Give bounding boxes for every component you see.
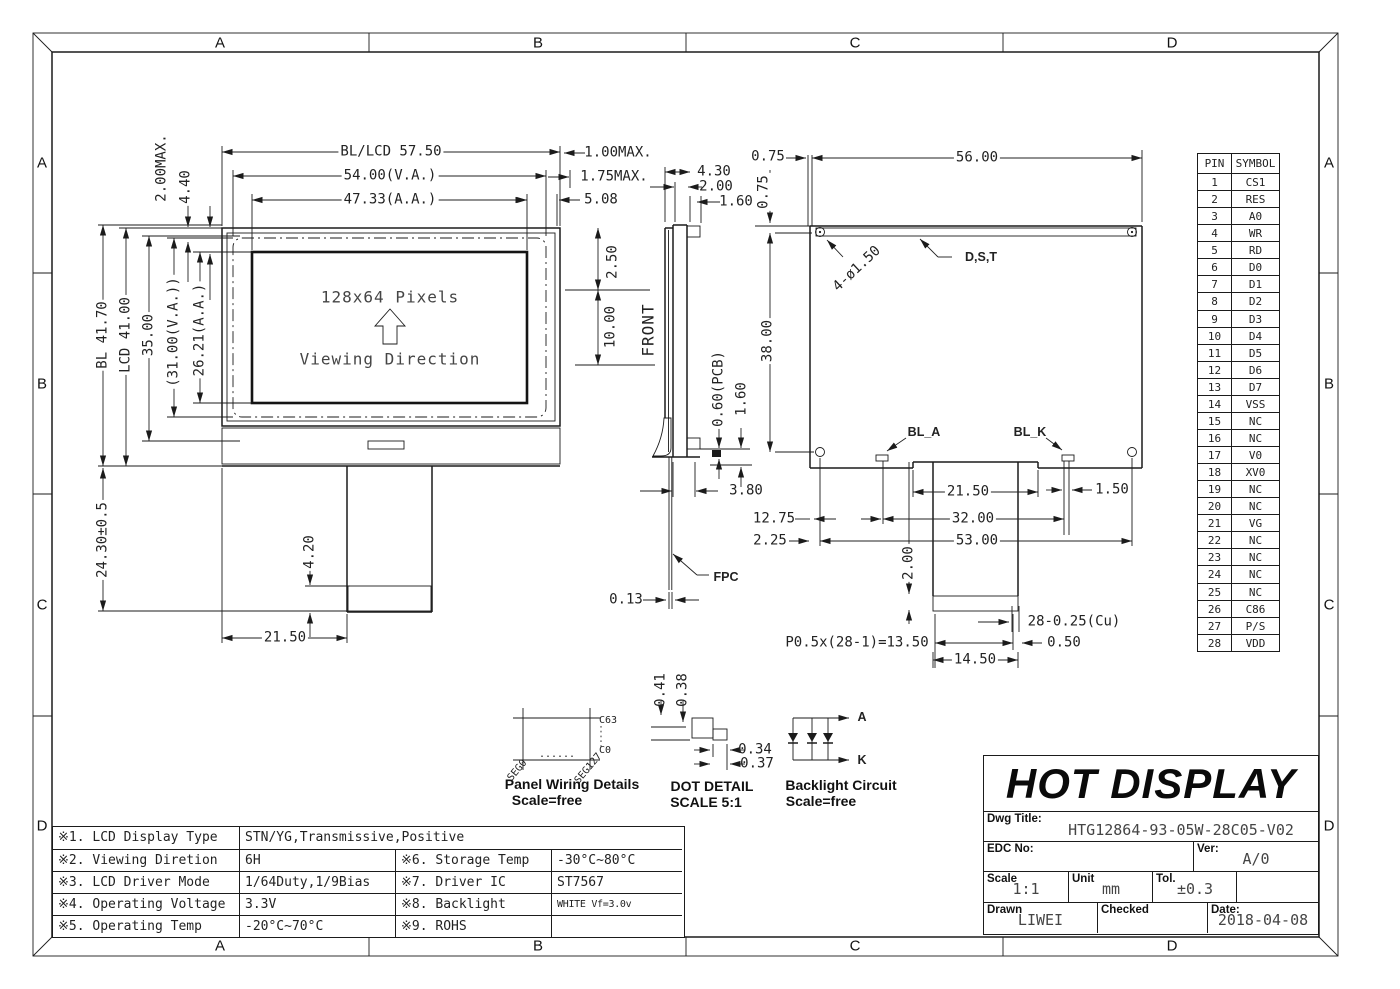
zone-bottom-a: A: [215, 938, 225, 955]
pin-table-header: PIN SYMBOL: [1198, 154, 1279, 173]
drawn-value: LIWEI: [984, 911, 1097, 929]
pin-symbol: CS1: [1231, 173, 1279, 191]
spec-key: ※1. LCD Display Type: [53, 827, 239, 849]
spec-row-5: ※5. Operating Temp -20°C~70°C ※9. ROHS: [53, 915, 684, 937]
dim-front-2150: 21.50: [262, 631, 308, 646]
zone-left-d: D: [37, 818, 48, 835]
pin-table-header-symbol: SYMBOL: [1231, 154, 1279, 173]
side-front-label: FRONT: [641, 301, 658, 358]
pin-symbol: C86: [1231, 600, 1279, 618]
spec-table: ※1. LCD Display Type STN/YG,Transmissive…: [52, 826, 685, 938]
dim-front-bezel-max: 2.00MAX.: [155, 132, 170, 203]
pin-table-row: 16 NC: [1198, 429, 1279, 446]
pin-table-row: 23 NC: [1198, 548, 1279, 565]
spec-value: -30°C~80°C: [551, 849, 682, 871]
pin-symbol: VG: [1231, 514, 1279, 532]
spec-value: STN/YG,Transmissive,Positive: [239, 827, 682, 849]
unit-cell: Unit mm: [1068, 872, 1153, 902]
pin-number: 23: [1198, 548, 1231, 566]
pin-table-row: 20 NC: [1198, 497, 1279, 514]
pin-symbol: A0: [1231, 207, 1279, 225]
pin-symbol: WR: [1231, 224, 1279, 242]
pin-table-row: 14 VSS: [1198, 395, 1279, 412]
projection-symbol-cell: [1236, 872, 1318, 902]
pin-table-row: 27 P/S: [1198, 617, 1279, 634]
pin-table-row: 25 NC: [1198, 583, 1279, 600]
backlight-circuit-detail: [788, 718, 849, 760]
pin-table-row: 19 NC: [1198, 480, 1279, 497]
pin-table-row: 17 V0: [1198, 446, 1279, 463]
zone-bottom-c: C: [850, 938, 861, 955]
pin-symbol: NC: [1231, 429, 1279, 447]
dim-side-013: 0.13: [607, 593, 645, 608]
pin-table-row: 4 WR: [1198, 224, 1279, 241]
pin-symbol: D1: [1231, 275, 1279, 293]
pin-table-row: 28 VDD: [1198, 634, 1279, 651]
pin-number: 27: [1198, 617, 1231, 635]
pin-table-row: 8 D2: [1198, 292, 1279, 309]
pin-number: 10: [1198, 327, 1231, 345]
drawn-checked-date-row: Drawn LIWEI Checked Date: 2018-04-08: [984, 903, 1318, 933]
backlight-anode-label: A: [855, 710, 868, 724]
spec-key: ※9. ROHS: [395, 915, 551, 937]
dim-back-075v: 0.75: [757, 173, 772, 211]
pin-symbol: NC: [1231, 480, 1279, 498]
dim-front-508: 5.08: [582, 193, 620, 208]
pin-table-row: 13 D7: [1198, 378, 1279, 395]
pin-table-header-pin: PIN: [1198, 154, 1231, 173]
dim-back-1450: 14.50: [952, 653, 998, 668]
dwg-title-label: Dwg Title:: [987, 813, 1042, 825]
dim-back-3800: 38.00: [761, 318, 776, 364]
zone-right-a: A: [1324, 155, 1334, 172]
spec-key: ※8. Backlight: [395, 893, 551, 915]
dim-front-1max: 1.00MAX.: [582, 146, 653, 161]
zone-left-a: A: [37, 155, 47, 172]
pin-symbol: D6: [1231, 361, 1279, 379]
dim-side-160: 1.60: [717, 195, 755, 210]
dim-front-bl-height: BL 41.70: [96, 299, 111, 370]
pin-symbol: RES: [1231, 190, 1279, 208]
back-view: [810, 226, 1142, 611]
pin-table-row: 10 D4: [1198, 327, 1279, 344]
spec-value: [551, 915, 682, 937]
pin-number: 6: [1198, 258, 1231, 276]
pin-number: 26: [1198, 600, 1231, 618]
pin-symbol: D7: [1231, 378, 1279, 396]
pin-symbol: D0: [1231, 258, 1279, 276]
dim-back-1275: 12.75: [751, 512, 797, 527]
pin-table-row: 11 D5: [1198, 344, 1279, 361]
dim-front-va-height: (31.00(V.A.)): [167, 275, 182, 389]
pin-number: 5: [1198, 241, 1231, 259]
pin-symbol: V0: [1231, 446, 1279, 464]
pin-number: 17: [1198, 446, 1231, 464]
spec-value: 3.3V: [239, 893, 395, 915]
dim-back-200: 2.00: [902, 544, 917, 582]
spec-key: ※7. Driver IC: [395, 871, 551, 893]
spec-value: 6H: [239, 849, 395, 871]
dim-front-overall-width: BL/LCD 57.50: [338, 145, 443, 160]
edc-ver-row: EDC No: Ver: A/0: [984, 842, 1318, 872]
dim-front-lcd-height: LCD 41.00: [119, 295, 134, 375]
spec-key: ※2. Viewing Diretion: [53, 849, 239, 871]
zone-top-d: D: [1167, 35, 1178, 52]
dim-front-420: 4.20: [303, 533, 318, 571]
front-pixels-label: 128x64 Pixels: [319, 290, 461, 307]
spec-value: WHITE Vf=3.0v IF=45mA: [551, 893, 682, 915]
ver-value: A/0: [1194, 850, 1318, 868]
tol-value: ±0.3: [1153, 880, 1237, 898]
dim-back-5300: 53.00: [954, 534, 1000, 549]
zone-bottom-b: B: [533, 938, 543, 955]
pin-number: 14: [1198, 395, 1231, 413]
pin-symbol: NC: [1231, 412, 1279, 430]
pin-table-row: 21 VG: [1198, 514, 1279, 531]
back-cu-label: 28-0.25(Cu): [1026, 615, 1123, 630]
pin-table-row: 22 NC: [1198, 531, 1279, 548]
date-value: 2018-04-08: [1208, 911, 1318, 929]
dim-front-fpc-length: 24.30±0.5: [96, 500, 111, 580]
scale-unit-tol-row: Scale 1:1 Unit mm Tol. ±0.3: [984, 872, 1318, 903]
spec-row-2: ※2. Viewing Diretion 6H ※6. Storage Temp…: [53, 849, 684, 871]
pin-symbol: P/S: [1231, 617, 1279, 635]
pin-symbol: NC: [1231, 548, 1279, 566]
pin-number: 9: [1198, 310, 1231, 328]
dim-dot-041: 0.41: [654, 671, 669, 709]
backlight-detail-scale: Scale=free: [784, 793, 858, 809]
pin-table-row: 18 XV0: [1198, 463, 1279, 480]
spec-value: 1/64Duty,1/9Bias: [239, 871, 395, 893]
checked-label: Checked: [1101, 904, 1149, 916]
pin-number: 8: [1198, 292, 1231, 310]
pin-table-row: 7 D1: [1198, 275, 1279, 292]
spec-key: ※3. LCD Driver Mode: [53, 871, 239, 893]
dim-back-3200: 32.00: [950, 512, 996, 527]
spec-key: ※4. Operating Voltage: [53, 893, 239, 915]
title-block: HOT DISPLAY Dwg Title: HTG12864-93-05W-2…: [983, 755, 1319, 935]
checked-cell: Checked: [1097, 903, 1208, 933]
pin-number: 25: [1198, 583, 1231, 601]
spec-row-4: ※4. Operating Voltage 3.3V ※8. Backlight…: [53, 893, 684, 915]
zone-left-b: B: [37, 376, 47, 393]
dim-front-1000: 10.00: [604, 304, 619, 350]
pin-number: 21: [1198, 514, 1231, 532]
pin-table-row: 15 NC: [1198, 412, 1279, 429]
pin-number: 12: [1198, 361, 1231, 379]
dim-back-5600: 56.00: [954, 151, 1000, 166]
ver-cell: Ver: A/0: [1193, 842, 1318, 871]
dim-back-075h: 0.75: [749, 150, 787, 165]
pin-table-row: 24 NC: [1198, 565, 1279, 582]
pin-symbol: D5: [1231, 344, 1279, 362]
pin-number: 13: [1198, 378, 1231, 396]
pin-symbol: XV0: [1231, 463, 1279, 481]
zone-right-c: C: [1324, 597, 1335, 614]
zone-top-c: C: [850, 35, 861, 52]
zone-bottom-d: D: [1167, 938, 1178, 955]
pin-number: 11: [1198, 344, 1231, 362]
dim-front-250: 2.50: [606, 243, 621, 281]
dim-back-050: 0.50: [1045, 636, 1083, 651]
engineering-drawing-sheet: A B C D A B C D A B C D A B C D BL/LCD 5…: [0, 0, 1400, 989]
backlight-detail-title: Backlight Circuit: [783, 777, 898, 793]
zone-top-a: A: [215, 35, 225, 52]
pin-number: 16: [1198, 429, 1231, 447]
pin-table-row: 5 RD: [1198, 241, 1279, 258]
pin-symbol: D4: [1231, 327, 1279, 345]
front-viewing-direction-label: Viewing Direction: [298, 352, 483, 369]
dwg-title-row: Dwg Title: HTG12864-93-05W-28C05-V02: [984, 812, 1318, 842]
pin-number: 3: [1198, 207, 1231, 225]
dim-back-225: 2.25: [751, 534, 789, 549]
back-bla-label: BL_A: [906, 425, 943, 439]
dim-side-200: 2.00: [697, 180, 735, 195]
spec-key: ※5. Operating Temp: [53, 915, 239, 937]
pin-table-row: 2 RES: [1198, 190, 1279, 207]
pin-number: 19: [1198, 480, 1231, 498]
spec-row-3: ※3. LCD Driver Mode 1/64Duty,1/9Bias ※7.…: [53, 871, 684, 893]
dim-front-175max: 1.75MAX.: [578, 170, 649, 185]
pin-symbol: NC: [1231, 531, 1279, 549]
dim-front-440: 4.40: [179, 168, 194, 206]
spec-key: ※6. Storage Temp: [395, 849, 551, 871]
back-dst-label: D,S,T: [963, 250, 999, 264]
dim-side-380: 3.80: [727, 484, 765, 499]
dim-front-aa-width: 47.33(A.A.): [342, 193, 439, 208]
dim-dot-038: 0.38: [676, 671, 691, 709]
edc-label: EDC No:: [987, 843, 1034, 855]
pin-number: 24: [1198, 565, 1231, 583]
tol-cell: Tol. ±0.3: [1152, 872, 1237, 902]
backlight-cathode-label: K: [855, 753, 868, 767]
side-view: [652, 225, 700, 590]
zone-left-c: C: [37, 597, 48, 614]
dim-side-pcb: 0.60(PCB): [712, 349, 727, 429]
pin-number: 15: [1198, 412, 1231, 430]
pin-symbol: NC: [1231, 583, 1279, 601]
pin-table-row: 6 D0: [1198, 258, 1279, 275]
pin-symbol: D3: [1231, 310, 1279, 328]
pin-number: 7: [1198, 275, 1231, 293]
pin-table-row: 12 D6: [1198, 361, 1279, 378]
pin-table-row: 3 A0: [1198, 207, 1279, 224]
panel-detail-scale: Scale=free: [510, 792, 584, 808]
pin-number: 22: [1198, 531, 1231, 549]
dim-dot-037: 0.37: [738, 757, 776, 772]
pin-number: 2: [1198, 190, 1231, 208]
dim-side-160b: 1.60: [735, 380, 750, 418]
dot-detail: [651, 701, 745, 770]
date-cell: Date: 2018-04-08: [1207, 903, 1318, 933]
pin-symbol: NC: [1231, 497, 1279, 515]
front-view: [222, 228, 560, 612]
pin-table-row: 9 D3: [1198, 310, 1279, 327]
spec-row-1: ※1. LCD Display Type STN/YG,Transmissive…: [53, 827, 684, 849]
dot-detail-scale: SCALE 5:1: [668, 794, 744, 810]
dim-front-3500: 35.00: [142, 312, 157, 358]
dim-front-va-width: 54.00(V.A.): [342, 169, 439, 184]
front-view-dimensions: [98, 146, 655, 643]
panel-dots-label: ......: [537, 750, 577, 761]
pin-table-row: 26 C86: [1198, 600, 1279, 617]
panel-detail-title: Panel Wiring Details: [503, 776, 641, 792]
spec-value: ST7567: [551, 871, 682, 893]
zone-right-d: D: [1324, 818, 1335, 835]
pin-number: 20: [1198, 497, 1231, 515]
back-blk-label: BL_K: [1012, 425, 1049, 439]
zone-top-b: B: [533, 35, 543, 52]
zone-right-b: B: [1324, 376, 1334, 393]
panel-c63-label: C63: [597, 716, 619, 727]
dwg-title-value: HTG12864-93-05W-28C05-V02: [1044, 821, 1318, 839]
dim-side-430: 4.30: [695, 165, 733, 180]
company-name: HOT DISPLAY: [984, 756, 1318, 812]
dim-front-aa-height: 26.21(A.A.): [193, 282, 208, 379]
unit-value: mm: [1069, 880, 1153, 898]
dim-back-150: 1.50: [1093, 483, 1131, 498]
pin-symbol: D2: [1231, 292, 1279, 310]
back-pitch-label: P0.5x(28-1)=13.50: [783, 636, 930, 651]
dot-detail-title: DOT DETAIL: [669, 778, 756, 794]
spec-value: -20°C~70°C: [239, 915, 395, 937]
scale-value: 1:1: [984, 880, 1068, 898]
pin-table: PIN SYMBOL 1 CS1 2 RES 3 A0 4 WR 5 RD 6 …: [1197, 153, 1280, 652]
pin-number: 1: [1198, 173, 1231, 191]
pin-number: 4: [1198, 224, 1231, 242]
pin-symbol: VDD: [1231, 634, 1279, 652]
side-fpc-label: FPC: [712, 570, 741, 584]
pin-number: 18: [1198, 463, 1231, 481]
pin-number: 28: [1198, 634, 1231, 652]
dim-back-2150: 21.50: [945, 485, 991, 500]
pin-table-row: 1 CS1: [1198, 173, 1279, 190]
pin-symbol: NC: [1231, 565, 1279, 583]
pin-symbol: RD: [1231, 241, 1279, 259]
pin-symbol: VSS: [1231, 395, 1279, 413]
